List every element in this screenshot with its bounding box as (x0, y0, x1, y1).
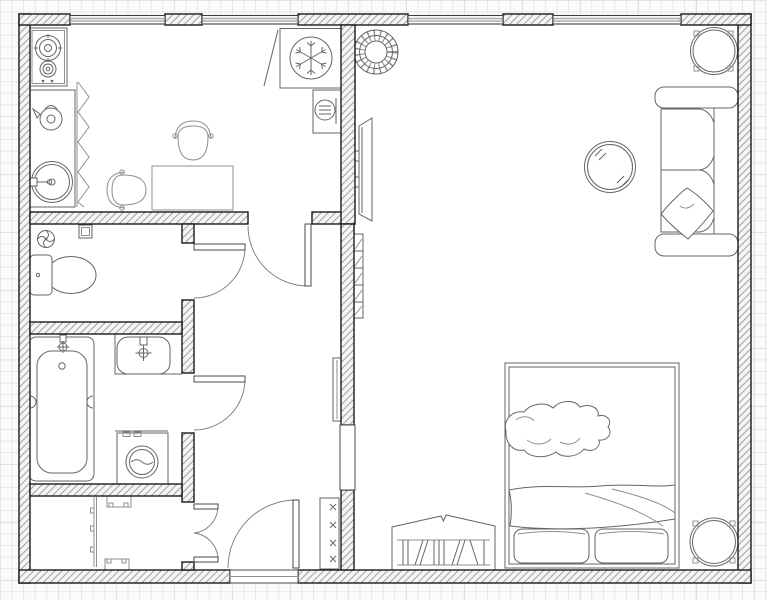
shelf-bracket-icon (105, 559, 129, 570)
window (408, 16, 503, 25)
bookshelf-icon (392, 515, 495, 570)
living-room-passage (340, 425, 355, 490)
wall-radiator-icon (354, 234, 363, 318)
window (553, 16, 681, 25)
wall-hall-living (341, 224, 354, 425)
wall-top-seg (298, 14, 408, 25)
double-bed-icon (505, 363, 679, 568)
pillow (514, 529, 589, 563)
pillow (595, 529, 668, 563)
sofa-icon (655, 87, 738, 256)
wall-bottom-seg (298, 570, 751, 583)
wall-hall-left (182, 224, 194, 243)
boiler-cabinet-icon (313, 90, 341, 133)
coat-rack-icon (320, 498, 339, 569)
wall-top-seg (681, 14, 751, 25)
wall-left (19, 14, 30, 583)
wall-hall-living (341, 490, 354, 570)
gas-stove-icon (30, 28, 68, 86)
wall-top-seg (19, 14, 70, 25)
floor-plan-canvas (0, 0, 767, 600)
wall-top-seg (165, 14, 202, 25)
shelf-bracket-icon (107, 496, 131, 507)
window (202, 16, 298, 25)
wash-basin-icon (117, 337, 170, 374)
wall-hall-left (182, 433, 194, 502)
window (70, 16, 165, 25)
wall-kitchen-living (341, 25, 355, 224)
wall-kitchen-bottom (312, 212, 342, 224)
dining-table (152, 166, 233, 210)
floor-plan-drawing (0, 0, 767, 600)
wall-hall-left (182, 300, 194, 373)
washing-machine-icon (117, 432, 168, 484)
wall-top-seg (503, 14, 553, 25)
wall-wc-bath (30, 322, 182, 334)
wall-right (738, 14, 751, 583)
wall-kitchen-bottom (30, 212, 248, 224)
wall-hall-left (182, 562, 194, 570)
wall-mirror-icon (333, 358, 341, 421)
wall-bottom-seg (19, 570, 230, 583)
wall-bath-closet (30, 484, 182, 496)
bathtub-icon (29, 335, 94, 481)
